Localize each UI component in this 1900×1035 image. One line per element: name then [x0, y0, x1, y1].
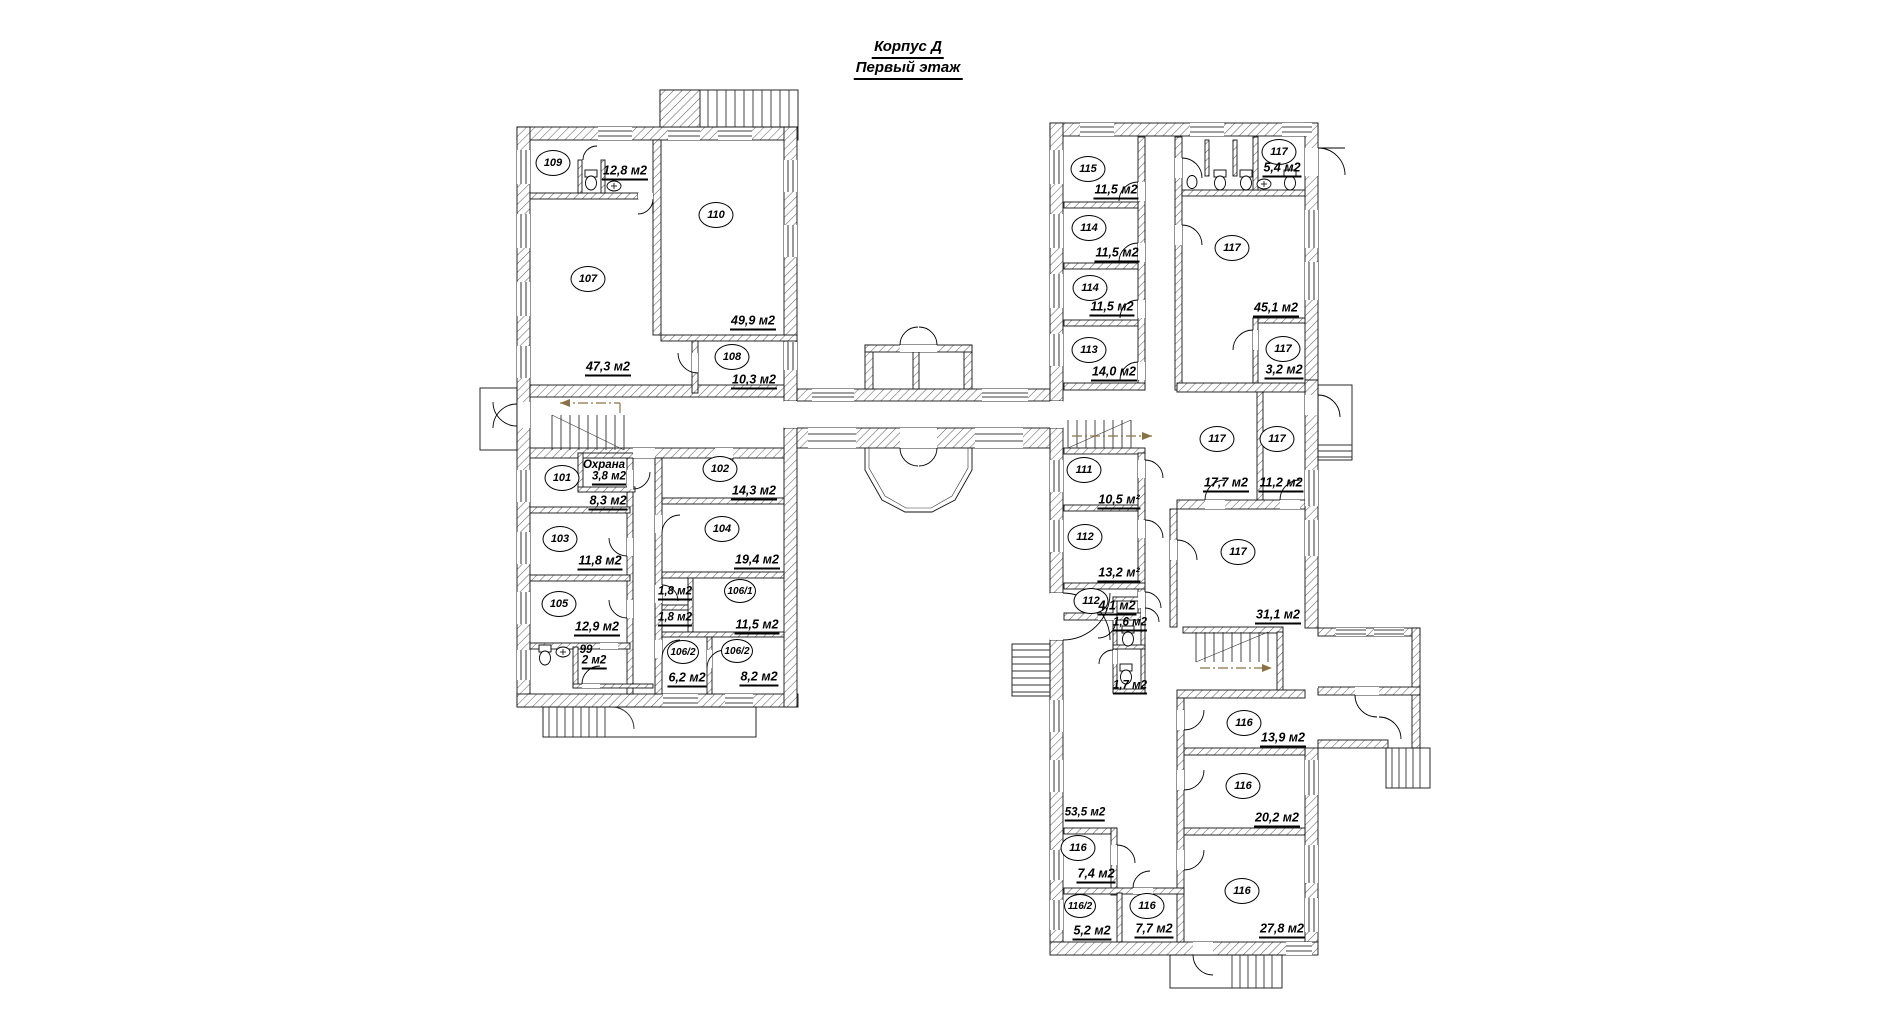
room-area-label: 13,2 м² [1097, 566, 1140, 583]
room-area-label: 8,3 м2 [588, 494, 627, 511]
room-number-circle: 117 [1200, 426, 1235, 452]
room-number-circle: 106/1 [724, 579, 756, 603]
room-number-circle: 112 [1068, 524, 1103, 550]
room-area-label: 11,8 м2 [577, 554, 622, 571]
room-number-circle: 108 [715, 344, 750, 370]
room-area-label: 13,9 м2 [1260, 731, 1306, 748]
room-number-circle: 104 [705, 516, 740, 542]
room-labels-layer: 10912,8 м211049,9 м210747,3 м210810,3 м2… [0, 0, 1900, 1035]
room-area-label: 5,2 м2 [1072, 924, 1111, 941]
room-area-label: 6,2 м2 [667, 671, 706, 688]
room-number-circle: 114 [1073, 275, 1108, 301]
room-number-circle: 103 [543, 526, 578, 552]
room-area-label: 14,0 м2 [1091, 365, 1137, 382]
room-area-label: 20,2 м2 [1254, 811, 1300, 828]
room-number-circle: 115 [1071, 156, 1106, 182]
room-area-label: 7,7 м2 [1134, 922, 1173, 939]
room-area-label: 45,1 м2 [1253, 301, 1299, 318]
room-number-circle: 106/2 [667, 640, 699, 664]
plan-text-label: 1,8 м2 [658, 586, 692, 601]
plan-text-label: 3,8 м2 [592, 471, 626, 486]
room-number-circle: 116 [1225, 878, 1260, 904]
room-area-label: 4,1 м2 [1097, 599, 1136, 616]
room-number-circle: 105 [542, 591, 577, 617]
room-area-label: 31,1 м2 [1255, 608, 1301, 625]
plan-text-label: 53,5 м2 [1065, 807, 1105, 822]
room-number-circle: 116 [1227, 710, 1262, 736]
room-area-label: 7,4 м2 [1076, 867, 1115, 884]
room-number-circle: 116 [1226, 773, 1261, 799]
room-number-circle: 117 [1266, 336, 1301, 362]
room-area-label: 10,5 м² [1097, 493, 1140, 510]
room-area-label: 3,2 м2 [1264, 363, 1303, 380]
room-number-circle: 106/2 [721, 639, 753, 663]
room-number-circle: 116 [1130, 893, 1165, 919]
plan-text-label: 1,6 м2 [1113, 617, 1147, 632]
room-area-label: 11,5 м2 [1094, 246, 1139, 263]
room-number-circle: 117 [1260, 426, 1295, 452]
room-number-circle: 117 [1221, 539, 1256, 565]
room-number-circle: 113 [1072, 337, 1107, 363]
room-area-label: 49,9 м2 [730, 314, 776, 331]
room-area-label: 17,7 м2 [1203, 476, 1249, 493]
plan-text-label: 1,7 м2 [1113, 680, 1147, 695]
room-area-label: 5,4 м2 [1262, 161, 1301, 178]
room-number-circle: 111 [1067, 457, 1102, 483]
room-area-label: 12,8 м2 [602, 164, 648, 181]
room-number-circle: 116 [1061, 835, 1096, 861]
room-area-label: 11,5 м2 [1089, 300, 1134, 317]
room-area-label: 47,3 м2 [585, 360, 631, 377]
room-area-label: 19,4 м2 [734, 553, 780, 570]
room-number-circle: 114 [1072, 215, 1107, 241]
room-area-label: 10,3 м2 [731, 373, 777, 390]
room-area-label: 27,8 м2 [1259, 922, 1305, 939]
room-number-circle: 110 [699, 202, 734, 228]
room-area-label: 12,9 м2 [574, 620, 620, 637]
room-number-circle: 107 [571, 266, 606, 292]
plan-text-label: 2 м2 [582, 655, 607, 670]
room-number-circle: 109 [536, 150, 571, 176]
floor-plan: Корпус Д Первый этаж [0, 0, 1900, 1035]
room-number-circle: 116/2 [1064, 894, 1096, 918]
room-number-circle: 117 [1215, 235, 1250, 261]
room-number-circle: 101 [545, 465, 580, 491]
plan-text-label: 1,8 м2 [658, 612, 692, 627]
room-area-label: 11,2 м2 [1258, 476, 1303, 493]
room-area-label: 14,3 м2 [731, 484, 777, 501]
room-area-label: 8,2 м2 [739, 670, 778, 687]
room-number-circle: 102 [703, 456, 738, 482]
room-area-label: 11,5 м2 [1093, 183, 1138, 200]
plan-text-label: Охрана [583, 459, 625, 471]
room-area-label: 11,5 м2 [734, 618, 779, 635]
